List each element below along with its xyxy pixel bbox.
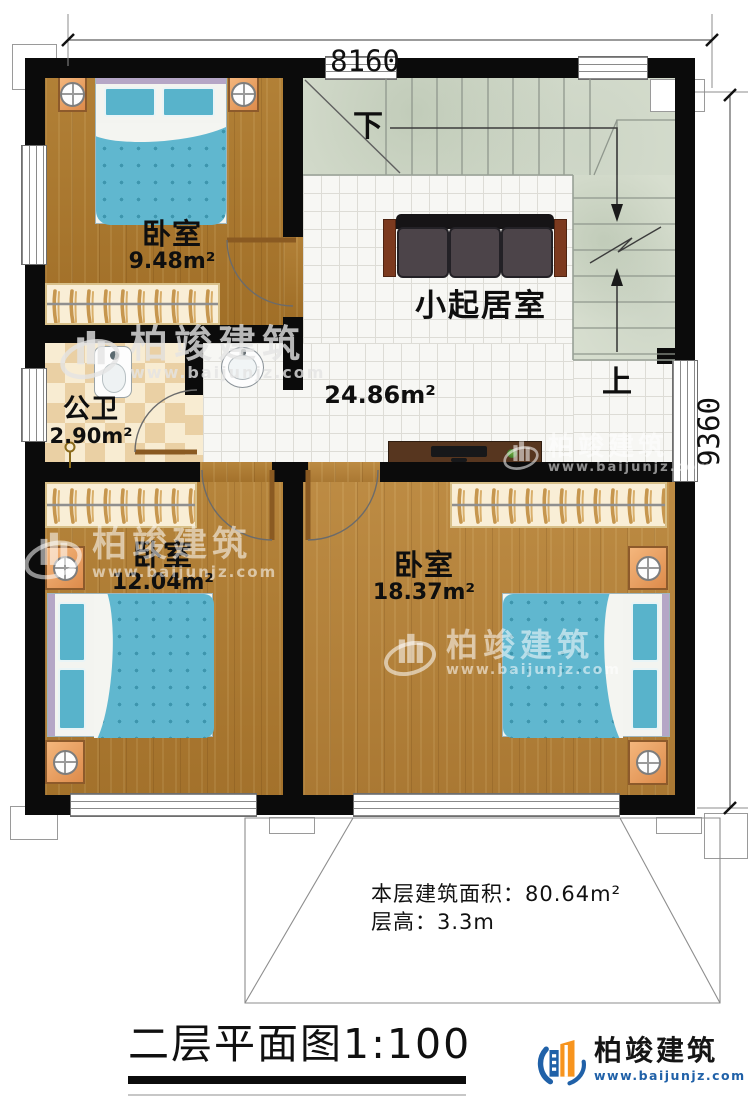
floor-stairs-right bbox=[573, 175, 675, 360]
threshold-bedroom-left bbox=[200, 462, 272, 482]
squat-toilet-icon bbox=[94, 346, 132, 398]
wall-between-bedrooms bbox=[283, 482, 303, 795]
note-floor-height: 层高：3.3m bbox=[371, 906, 495, 936]
sofa bbox=[383, 214, 567, 280]
sheet-fold bbox=[94, 594, 118, 738]
hanger-icon bbox=[452, 484, 665, 526]
note-floor-height-text: 层高：3.3m bbox=[371, 910, 495, 934]
room-area: 24.86m² bbox=[324, 381, 435, 409]
stairs-up-char: 上 bbox=[602, 365, 632, 400]
hanger-icon bbox=[47, 484, 195, 526]
dimension-top: 8160 bbox=[320, 44, 410, 78]
room-label-bedroom-left: 卧室 12.04m² bbox=[63, 539, 263, 596]
toilet-bowl bbox=[102, 363, 126, 393]
page-title-text: 二层平面图1:100 bbox=[128, 1020, 471, 1068]
lamp-icon bbox=[636, 556, 661, 581]
brand-name: 柏竣建筑 bbox=[594, 1037, 746, 1065]
sink-basin bbox=[228, 355, 257, 380]
plant-icon bbox=[507, 449, 517, 458]
room-label-living: 小起居室 bbox=[381, 289, 581, 324]
wall-hall-bottom-center bbox=[272, 462, 308, 482]
pillow bbox=[631, 602, 659, 662]
room-area: 9.48m² bbox=[92, 250, 252, 275]
room-name: 小起居室 bbox=[415, 288, 547, 324]
floor-plan-page: 8160 9360 卧室 9.48m² 公卫 2.90m² 小起居室 24.86… bbox=[0, 0, 750, 1104]
room-name: 卧室 bbox=[92, 218, 252, 250]
wall-below-bedroom-top bbox=[25, 325, 283, 343]
closet-bedroom-left bbox=[45, 482, 197, 528]
nightstand bbox=[628, 546, 668, 590]
pillow bbox=[631, 668, 659, 730]
side-table bbox=[554, 219, 567, 277]
brand-site: www.baijunjz.com bbox=[594, 1068, 746, 1083]
blanket bbox=[94, 594, 214, 738]
sheet-fold bbox=[599, 594, 623, 738]
side-table bbox=[383, 219, 396, 277]
sheet-fold bbox=[96, 123, 226, 148]
room-name: 公卫 bbox=[21, 395, 161, 425]
note-floor-area-text: 本层建筑面积：80.64m² bbox=[371, 882, 621, 906]
room-area: 12.04m² bbox=[63, 571, 263, 596]
corner-marker-window-left bbox=[269, 817, 315, 834]
stairs-down-char: 下 bbox=[353, 109, 383, 144]
threshold-bathroom bbox=[185, 395, 203, 462]
wall-bedroom-top-right-upper bbox=[283, 58, 303, 237]
room-area: 2.90m² bbox=[21, 425, 161, 449]
stairs-up-label: 上 bbox=[597, 366, 637, 400]
lamp-icon bbox=[53, 750, 78, 775]
nightstand bbox=[628, 740, 668, 785]
wall-hall-bottom-right bbox=[380, 462, 675, 482]
title-underline-thin bbox=[128, 1094, 466, 1096]
room-area-living: 24.86m² bbox=[310, 382, 450, 409]
brand-logo: 柏竣建筑 www.baijunjz.com bbox=[537, 1032, 746, 1088]
closet-bedroom-top bbox=[45, 283, 220, 325]
dimension-top-value: 8160 bbox=[330, 44, 400, 78]
room-label-bedroom-right: 卧室 18.37m² bbox=[324, 549, 524, 606]
bed-bedroom-left bbox=[47, 593, 213, 737]
corner-marker-window-right bbox=[656, 817, 702, 834]
note-floor-area: 本层建筑面积：80.64m² bbox=[371, 878, 621, 908]
corner-marker-bottom-right bbox=[704, 813, 748, 859]
sofa-cushion bbox=[449, 227, 501, 278]
monitor-icon bbox=[431, 446, 487, 457]
dimension-right: 9360 bbox=[674, 397, 744, 467]
headboard bbox=[96, 77, 226, 84]
sink-icon bbox=[221, 347, 264, 388]
blanket bbox=[96, 123, 226, 225]
wall-hall-bottom-left bbox=[25, 462, 200, 482]
title-underline bbox=[128, 1076, 466, 1084]
threshold-bedroom-right bbox=[308, 462, 380, 482]
window-bottom-right bbox=[353, 793, 620, 817]
threshold-bedroom-top bbox=[283, 237, 303, 317]
headboard bbox=[48, 594, 55, 736]
brand-logo-icon bbox=[537, 1032, 587, 1088]
room-label-bathroom: 公卫 2.90m² bbox=[21, 395, 161, 449]
window-bottom-left bbox=[70, 793, 257, 817]
nightstand bbox=[58, 76, 87, 112]
lamp-icon bbox=[636, 750, 661, 775]
window-top-2 bbox=[578, 56, 648, 80]
headboard bbox=[662, 594, 669, 736]
wall-bedroom-top-right-lower bbox=[283, 317, 303, 390]
toilet-drain bbox=[110, 351, 119, 360]
nightstand bbox=[228, 76, 259, 112]
lamp-icon bbox=[231, 82, 256, 107]
stairs-down-label: 下 bbox=[348, 110, 388, 144]
pillow bbox=[58, 668, 86, 730]
pillow bbox=[58, 602, 86, 662]
wall-bathroom-right bbox=[185, 343, 203, 395]
pillow bbox=[104, 87, 156, 117]
hanger-icon bbox=[47, 285, 218, 323]
lamp-icon bbox=[60, 82, 85, 107]
room-name: 卧室 bbox=[324, 549, 524, 581]
nightstand bbox=[45, 740, 85, 784]
blanket bbox=[503, 594, 623, 738]
window-left-bedroom bbox=[21, 145, 47, 265]
pillow bbox=[162, 87, 215, 117]
room-name: 卧室 bbox=[63, 539, 263, 571]
room-area: 18.37m² bbox=[324, 581, 524, 606]
closet-bedroom-right bbox=[450, 482, 667, 528]
bed-bedroom-top bbox=[95, 76, 227, 224]
bed-bedroom-right bbox=[502, 593, 670, 737]
dimension-right-value: 9360 bbox=[692, 397, 726, 467]
sofa-cushion bbox=[501, 227, 553, 278]
room-label-bedroom-top: 卧室 9.48m² bbox=[92, 218, 252, 275]
page-title: 二层平面图1:100 bbox=[128, 1010, 471, 1070]
sofa-cushion bbox=[397, 227, 449, 278]
